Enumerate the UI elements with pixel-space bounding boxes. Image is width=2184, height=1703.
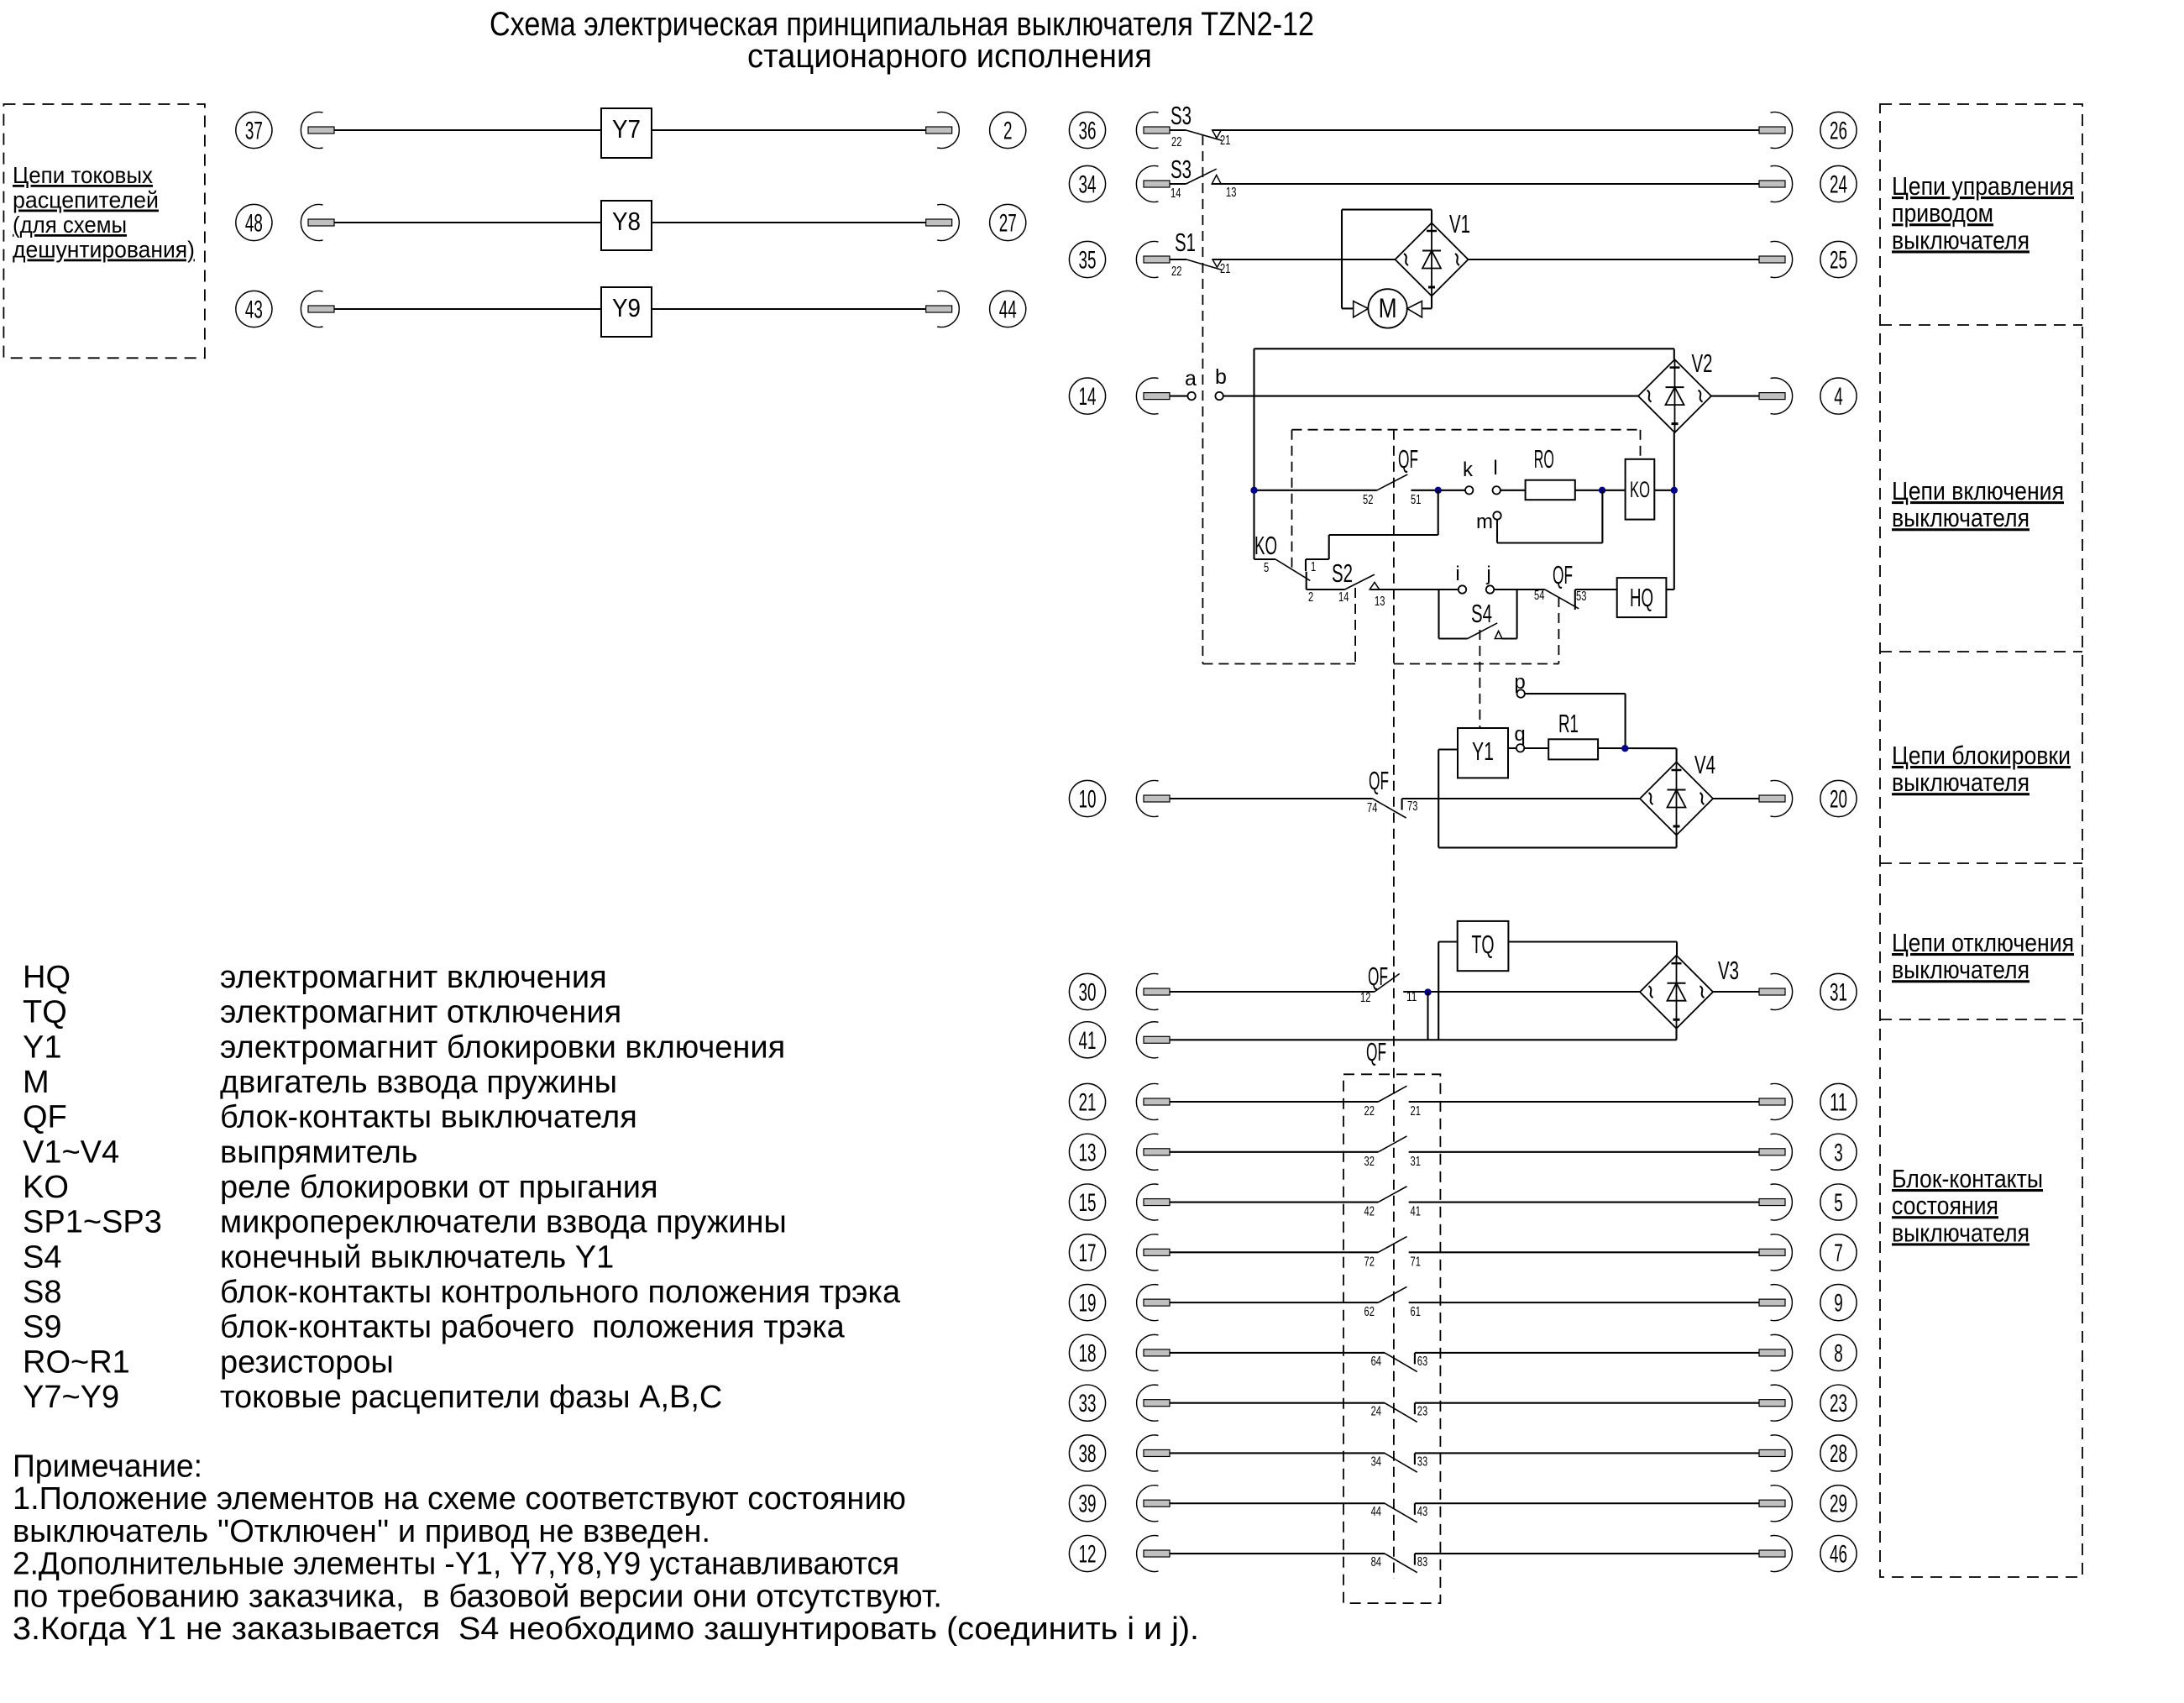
svg-text:52: 52 bbox=[1363, 493, 1373, 507]
svg-text:S4: S4 bbox=[1471, 599, 1492, 628]
svg-text:22: 22 bbox=[1171, 265, 1181, 279]
svg-text:электромагнит блокировки включ: электромагнит блокировки включения bbox=[220, 1030, 785, 1065]
svg-text:24: 24 bbox=[1830, 171, 1847, 199]
svg-text:p: p bbox=[1514, 671, 1525, 694]
svg-text:Блок-контакты: Блок-контакты bbox=[1892, 1164, 2043, 1193]
svg-text:k: k bbox=[1463, 458, 1474, 481]
svg-text:14: 14 bbox=[1079, 383, 1097, 411]
svg-text:14: 14 bbox=[1338, 590, 1349, 605]
svg-text:5: 5 bbox=[1834, 1189, 1843, 1217]
svg-text:27: 27 bbox=[999, 210, 1017, 238]
svg-text:14: 14 bbox=[1171, 186, 1181, 201]
svg-text:m: m bbox=[1476, 511, 1493, 533]
svg-text:по требованию заказчика, в ба: по требованию заказчика, в базовой верси… bbox=[13, 1579, 942, 1614]
svg-text:42: 42 bbox=[1364, 1205, 1375, 1219]
svg-text:блок-контакты выключателя: блок-контакты выключателя bbox=[220, 1100, 637, 1135]
svg-text:31: 31 bbox=[1411, 1155, 1421, 1169]
svg-text:блок-контакты рабочего положе: блок-контакты рабочего положения трэка bbox=[220, 1310, 846, 1345]
svg-text:l: l bbox=[1493, 457, 1497, 479]
svg-text:28: 28 bbox=[1830, 1440, 1847, 1468]
svg-text:выключателя: выключателя bbox=[1892, 768, 2029, 797]
svg-text:R1: R1 bbox=[1558, 709, 1579, 738]
svg-text:11: 11 bbox=[1830, 1089, 1847, 1117]
svg-text:S4: S4 bbox=[23, 1239, 61, 1275]
svg-text:73: 73 bbox=[1407, 799, 1417, 814]
svg-text:QF: QF bbox=[23, 1100, 67, 1135]
svg-text:29: 29 bbox=[1830, 1491, 1847, 1518]
svg-text:1.Положение элементов на схеме: 1.Положение элементов на схеме соответст… bbox=[13, 1481, 906, 1517]
svg-text:TQ: TQ bbox=[1472, 930, 1495, 959]
svg-text:2: 2 bbox=[1308, 590, 1313, 605]
svg-text:18: 18 bbox=[1079, 1339, 1097, 1367]
svg-text:QF: QF bbox=[1398, 444, 1418, 474]
svg-text:выключатель ''Отключен'' и при: выключатель ''Отключен'' и привод не взв… bbox=[13, 1514, 710, 1549]
svg-text:11: 11 bbox=[1406, 990, 1417, 1004]
svg-text:3.Когда Y1 не заказывается S4: 3.Когда Y1 не заказывается S4 необходимо… bbox=[13, 1611, 1199, 1647]
svg-text:9: 9 bbox=[1834, 1290, 1843, 1318]
svg-text:i: i bbox=[1455, 563, 1459, 585]
svg-text:12: 12 bbox=[1079, 1541, 1097, 1569]
svg-text:53: 53 bbox=[1576, 589, 1586, 604]
svg-text:Цепи включения: Цепи включения bbox=[1892, 476, 2064, 506]
svg-text:Цепи управления: Цепи управления bbox=[1892, 171, 2074, 201]
svg-text:41: 41 bbox=[1079, 1027, 1097, 1055]
svg-text:22: 22 bbox=[1171, 135, 1181, 149]
svg-text:выключателя: выключателя bbox=[1892, 1218, 2029, 1247]
svg-text:S9: S9 bbox=[23, 1310, 61, 1345]
svg-text:63: 63 bbox=[1417, 1355, 1427, 1369]
svg-text:резистороы: резистороы bbox=[220, 1344, 394, 1380]
svg-text:RO~R1: RO~R1 bbox=[23, 1344, 130, 1380]
svg-text:51: 51 bbox=[1411, 493, 1421, 507]
svg-text:HQ: HQ bbox=[23, 960, 71, 995]
svg-text:KO: KO bbox=[1254, 531, 1277, 560]
svg-text:блок-контакты контрольного пол: блок-контакты контрольного положения трэ… bbox=[220, 1275, 901, 1310]
svg-text:21: 21 bbox=[1220, 262, 1230, 276]
svg-text:Y8: Y8 bbox=[612, 207, 641, 236]
svg-text:35: 35 bbox=[1079, 247, 1097, 275]
svg-text:36: 36 bbox=[1079, 118, 1097, 145]
svg-text:стационарного исполнения: стационарного исполнения bbox=[747, 38, 1152, 75]
svg-text:b: b bbox=[1215, 365, 1227, 389]
svg-text:13: 13 bbox=[1079, 1139, 1097, 1166]
svg-text:33: 33 bbox=[1417, 1454, 1427, 1469]
svg-text:токовые расцепители фазы A,B,C: токовые расцепители фазы A,B,C bbox=[220, 1380, 722, 1415]
svg-text:46: 46 bbox=[1830, 1541, 1847, 1569]
svg-text:KO: KO bbox=[1630, 477, 1650, 502]
svg-text:S2: S2 bbox=[1332, 558, 1353, 588]
svg-text:S3: S3 bbox=[1171, 155, 1192, 184]
svg-text:71: 71 bbox=[1411, 1255, 1421, 1269]
svg-text:37: 37 bbox=[245, 118, 263, 145]
svg-text:(для схемы: (для схемы bbox=[13, 212, 127, 238]
svg-text:V1: V1 bbox=[1449, 209, 1470, 238]
svg-text:20: 20 bbox=[1830, 786, 1847, 814]
svg-text:QF: QF bbox=[1553, 560, 1573, 589]
svg-text:Y9: Y9 bbox=[612, 293, 641, 322]
svg-text:5: 5 bbox=[1264, 561, 1269, 575]
svg-text:34: 34 bbox=[1371, 1454, 1381, 1469]
svg-text:Цепи токовых: Цепи токовых bbox=[13, 162, 153, 188]
svg-text:S1: S1 bbox=[1175, 228, 1196, 257]
svg-text:Примечание:: Примечание: bbox=[13, 1449, 202, 1485]
svg-text:61: 61 bbox=[1411, 1305, 1421, 1319]
svg-text:2: 2 bbox=[1003, 118, 1013, 145]
svg-text:10: 10 bbox=[1079, 786, 1097, 814]
svg-text:Цепи блокировки: Цепи блокировки bbox=[1892, 741, 2071, 770]
svg-text:V2: V2 bbox=[1692, 348, 1713, 378]
svg-text:q: q bbox=[1514, 723, 1525, 746]
svg-text:выпрямитель: выпрямитель bbox=[220, 1134, 418, 1170]
svg-text:84: 84 bbox=[1371, 1555, 1381, 1569]
svg-text:электромагнит отключения: электромагнит отключения bbox=[220, 995, 621, 1030]
svg-text:2.Дополнительные элементы -Y1,: 2.Дополнительные элементы -Y1, Y7,Y8,Y9 … bbox=[13, 1547, 899, 1582]
svg-text:двигатель взвода пружины: двигатель взвода пружины bbox=[220, 1065, 617, 1100]
svg-text:43: 43 bbox=[1417, 1505, 1427, 1519]
svg-text:26: 26 bbox=[1830, 118, 1847, 145]
svg-text:23: 23 bbox=[1417, 1405, 1427, 1419]
svg-text:23: 23 bbox=[1830, 1390, 1847, 1417]
svg-text:TQ: TQ bbox=[23, 995, 67, 1030]
svg-text:SP1~SP3: SP1~SP3 bbox=[23, 1205, 162, 1240]
svg-text:3: 3 bbox=[1834, 1139, 1843, 1166]
svg-text:31: 31 bbox=[1830, 979, 1847, 1007]
svg-text:39: 39 bbox=[1079, 1491, 1097, 1518]
svg-text:62: 62 bbox=[1364, 1305, 1375, 1319]
svg-text:30: 30 bbox=[1079, 979, 1097, 1007]
svg-text:44: 44 bbox=[999, 296, 1017, 324]
svg-text:Y7: Y7 bbox=[612, 114, 641, 144]
svg-text:22: 22 bbox=[1364, 1104, 1375, 1119]
svg-text:7: 7 bbox=[1834, 1239, 1843, 1267]
svg-text:74: 74 bbox=[1367, 801, 1377, 815]
svg-text:a: a bbox=[1185, 367, 1197, 390]
svg-text:QF: QF bbox=[1366, 1037, 1386, 1066]
svg-text:V4: V4 bbox=[1694, 750, 1715, 779]
svg-text:32: 32 bbox=[1364, 1155, 1375, 1169]
svg-text:48: 48 bbox=[245, 210, 263, 238]
svg-text:M: M bbox=[23, 1065, 50, 1100]
svg-text:дешунтирования): дешунтирования) bbox=[13, 237, 195, 263]
svg-text:выключателя: выключателя bbox=[1892, 503, 2029, 532]
svg-text:25: 25 bbox=[1830, 247, 1847, 275]
svg-text:43: 43 bbox=[245, 296, 263, 324]
svg-text:QF: QF bbox=[1368, 962, 1388, 991]
svg-text:8: 8 bbox=[1834, 1339, 1843, 1367]
svg-text:4: 4 bbox=[1834, 383, 1843, 411]
svg-text:реле блокировки от прыгания: реле блокировки от прыгания bbox=[220, 1170, 658, 1205]
svg-text:расцепителей: расцепителей bbox=[13, 187, 159, 213]
svg-text:электромагнит включения: электромагнит включения bbox=[220, 960, 607, 995]
svg-text:M: M bbox=[1379, 293, 1397, 323]
svg-text:конечный выключатель Y1: конечный выключатель Y1 bbox=[220, 1239, 614, 1275]
svg-text:приводом: приводом bbox=[1892, 198, 1993, 228]
svg-text:KO: KO bbox=[23, 1170, 69, 1205]
svg-text:QF: QF bbox=[1369, 766, 1389, 795]
svg-text:1: 1 bbox=[1311, 560, 1316, 574]
svg-text:RO: RO bbox=[1534, 444, 1554, 474]
svg-text:24: 24 bbox=[1371, 1405, 1381, 1419]
svg-text:Y7~Y9: Y7~Y9 bbox=[23, 1380, 119, 1415]
svg-text:j: j bbox=[1485, 563, 1490, 585]
svg-text:выключателя: выключателя bbox=[1892, 955, 2029, 984]
svg-text:микропереключатели взвода пруж: микропереключатели взвода пружины bbox=[220, 1205, 787, 1240]
svg-text:15: 15 bbox=[1079, 1189, 1097, 1217]
svg-text:19: 19 bbox=[1079, 1290, 1097, 1318]
svg-text:Цепи отключения: Цепи отключения bbox=[1892, 928, 2074, 957]
svg-text:17: 17 bbox=[1079, 1239, 1097, 1267]
svg-text:Y1: Y1 bbox=[23, 1030, 61, 1065]
svg-text:38: 38 bbox=[1079, 1440, 1097, 1468]
svg-text:13: 13 bbox=[1226, 186, 1236, 200]
svg-text:54: 54 bbox=[1534, 589, 1544, 603]
svg-text:21: 21 bbox=[1220, 134, 1230, 148]
svg-text:83: 83 bbox=[1417, 1555, 1427, 1569]
svg-text:Y1: Y1 bbox=[1472, 736, 1494, 766]
svg-text:44: 44 bbox=[1371, 1505, 1381, 1519]
svg-text:41: 41 bbox=[1411, 1205, 1421, 1219]
svg-text:12: 12 bbox=[1360, 991, 1370, 1005]
svg-text:HQ: HQ bbox=[1630, 583, 1653, 612]
svg-text:13: 13 bbox=[1375, 595, 1385, 609]
svg-text:выключателя: выключателя bbox=[1892, 225, 2029, 254]
svg-text:S8: S8 bbox=[23, 1275, 61, 1310]
svg-text:64: 64 bbox=[1371, 1355, 1381, 1369]
svg-text:72: 72 bbox=[1364, 1255, 1375, 1269]
svg-text:V1~V4: V1~V4 bbox=[23, 1134, 119, 1170]
svg-text:V3: V3 bbox=[1718, 956, 1739, 985]
svg-text:S3: S3 bbox=[1171, 101, 1192, 130]
svg-text:21: 21 bbox=[1411, 1104, 1421, 1119]
svg-text:21: 21 bbox=[1079, 1089, 1097, 1117]
svg-text:34: 34 bbox=[1079, 171, 1097, 199]
svg-text:33: 33 bbox=[1079, 1390, 1097, 1417]
svg-text:состояния: состояния bbox=[1892, 1191, 1998, 1220]
